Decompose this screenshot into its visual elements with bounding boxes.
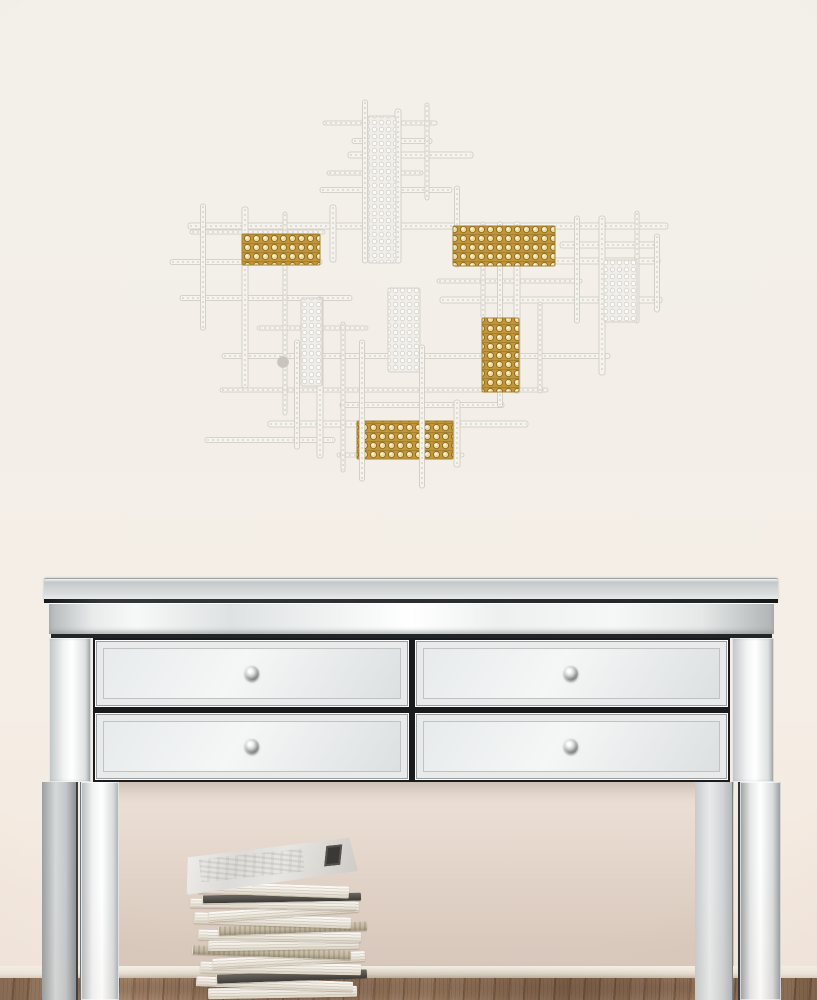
table-apron: [49, 603, 774, 634]
crystal-knob[interactable]: [245, 739, 259, 754]
drawer-mirror-panel: [424, 722, 720, 771]
drawer-grid: [93, 638, 730, 782]
table-leg-right-front: [738, 782, 781, 1000]
wall-art-sculpture: [170, 92, 680, 502]
crystal-knob[interactable]: [564, 739, 578, 754]
drawer-mirror-panel: [104, 722, 400, 771]
table-top-surface: [44, 578, 778, 601]
table-leg-left-front: [80, 782, 119, 1000]
drawer-mirror-panel: [424, 649, 720, 698]
mirrored-console-table: [40, 578, 780, 1000]
drawer-bottom-right[interactable]: [415, 713, 729, 780]
crystal-knob[interactable]: [564, 666, 578, 681]
corner-stile-right: [732, 638, 774, 782]
drawer-top-right[interactable]: [415, 640, 729, 707]
drawer-section: [49, 638, 774, 782]
corner-stile-left: [49, 638, 91, 782]
table-leg-left-outer: [42, 782, 78, 1000]
table-leg-right-back: [695, 782, 733, 1000]
crystal-knob[interactable]: [245, 666, 259, 681]
drawer-top-left[interactable]: [95, 640, 409, 707]
room-scene: [0, 0, 817, 1000]
drawer-mirror-panel: [104, 649, 400, 698]
drawer-bottom-left[interactable]: [95, 713, 409, 780]
